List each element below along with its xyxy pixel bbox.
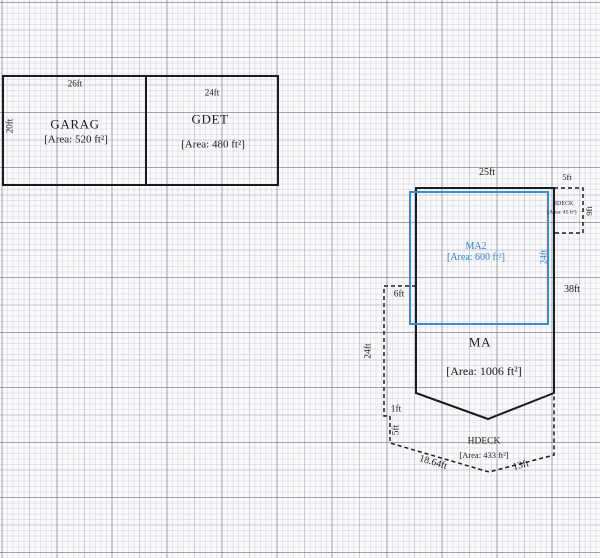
garage-height-dim: 20ft — [6, 119, 15, 134]
hdeck-left-dim: 24ft — [364, 343, 374, 358]
gdet-width-dim: 24ft — [205, 89, 220, 98]
ma2-area-label: [Area: 600 ft²] — [447, 253, 505, 263]
hdeck-title: HDECK — [468, 437, 501, 447]
hdeck-jog-dim: 1ft — [391, 405, 402, 415]
hdeck-small-top-dim: 5ft — [562, 173, 571, 182]
garage-width-dim: 26ft — [68, 80, 83, 89]
hdeck-area-label: [Area: 433 ft²] — [459, 451, 508, 460]
garage-gdet-outline[interactable] — [3, 76, 278, 185]
garage-title: GARAG — [50, 118, 99, 131]
sketch-shapes-layer — [0, 0, 600, 558]
sketch-canvas: 26ft 20ft GARAG [Area: 520 ft²] 24ft GDE… — [0, 0, 600, 558]
ma2-title: MA2 — [465, 242, 486, 252]
ma-title: MA — [469, 336, 491, 349]
hdeck-lower-left-dim: 5ft — [392, 425, 402, 436]
ma-area-label: [Area: 1006 ft²] — [446, 365, 522, 377]
gdet-title: GDET — [191, 113, 228, 126]
ma-outline[interactable] — [416, 188, 554, 419]
ma2-height-dim: 24ft — [540, 250, 549, 265]
garage-area-label: [Area: 520 ft²] — [44, 135, 108, 146]
hdeck-small-title: HDECK — [553, 201, 574, 207]
ma-top-dim: 25ft — [479, 168, 495, 178]
gdet-area-label: [Area: 480 ft²] — [181, 140, 245, 151]
ma-right-dim: 38ft — [564, 285, 580, 295]
hdeck-small-area-label: [Area: 45 ft²] — [547, 210, 576, 216]
hdeck-offset-dim: 6ft — [394, 290, 405, 300]
hdeck-small-right-dim: 9ft — [585, 206, 594, 215]
